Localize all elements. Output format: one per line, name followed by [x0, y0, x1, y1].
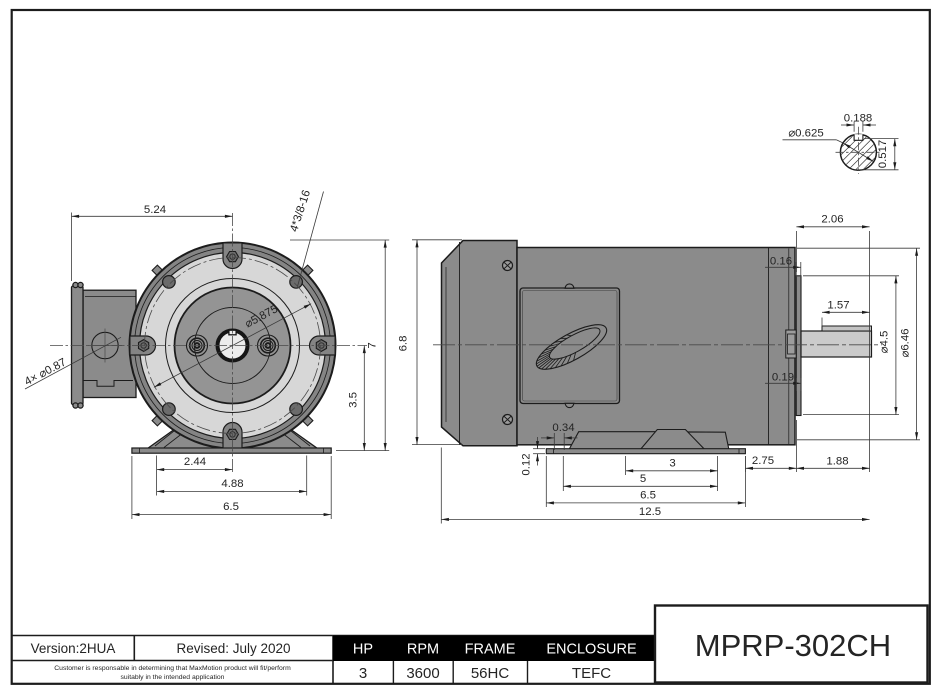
svg-text:ENCLOSURE: ENCLOSURE — [546, 642, 637, 658]
svg-text:6.5: 6.5 — [640, 489, 656, 501]
svg-text:2.06: 2.06 — [821, 214, 843, 226]
svg-text:3: 3 — [669, 458, 675, 470]
svg-text:HP: HP — [353, 642, 373, 658]
svg-text:0.188: 0.188 — [844, 113, 873, 125]
svg-text:6.5: 6.5 — [223, 501, 239, 513]
svg-text:3600: 3600 — [406, 665, 439, 682]
svg-text:2.44: 2.44 — [184, 456, 206, 468]
svg-text:0.34: 0.34 — [552, 422, 574, 434]
svg-text:0.517: 0.517 — [877, 140, 889, 169]
svg-text:suitably in the intended appli: suitably in the intended application — [121, 674, 225, 681]
svg-text:0.16: 0.16 — [770, 256, 792, 268]
svg-text:3: 3 — [359, 665, 367, 682]
svg-text:RPM: RPM — [407, 642, 439, 658]
svg-text:56HC: 56HC — [471, 665, 510, 682]
svg-text:3.5: 3.5 — [348, 392, 360, 408]
svg-text:0.19: 0.19 — [772, 372, 794, 384]
svg-text:⌀4.5: ⌀4.5 — [879, 331, 891, 354]
svg-text:1.88: 1.88 — [826, 455, 848, 467]
svg-text:0.12: 0.12 — [521, 453, 533, 475]
svg-text:Version:2HUA: Version:2HUA — [31, 641, 116, 656]
svg-text:5.24: 5.24 — [144, 204, 166, 216]
svg-text:TEFC: TEFC — [572, 665, 611, 682]
svg-text:2.75: 2.75 — [752, 455, 774, 467]
svg-text:⌀0.625: ⌀0.625 — [788, 127, 823, 139]
svg-text:7: 7 — [367, 342, 379, 348]
svg-text:MPRP-302CH: MPRP-302CH — [695, 628, 891, 663]
svg-text:5: 5 — [640, 473, 646, 485]
svg-text:FRAME: FRAME — [465, 642, 516, 658]
svg-text:1.57: 1.57 — [827, 300, 849, 312]
svg-text:⌀6.46: ⌀6.46 — [900, 328, 912, 357]
svg-text:Revised: July 2020: Revised: July 2020 — [176, 641, 290, 656]
svg-text:6.8: 6.8 — [398, 336, 410, 352]
svg-text:4.88: 4.88 — [221, 478, 243, 490]
svg-text:12.5: 12.5 — [639, 506, 661, 518]
svg-text:Customer is responsable in det: Customer is responsable in determining t… — [54, 665, 291, 672]
